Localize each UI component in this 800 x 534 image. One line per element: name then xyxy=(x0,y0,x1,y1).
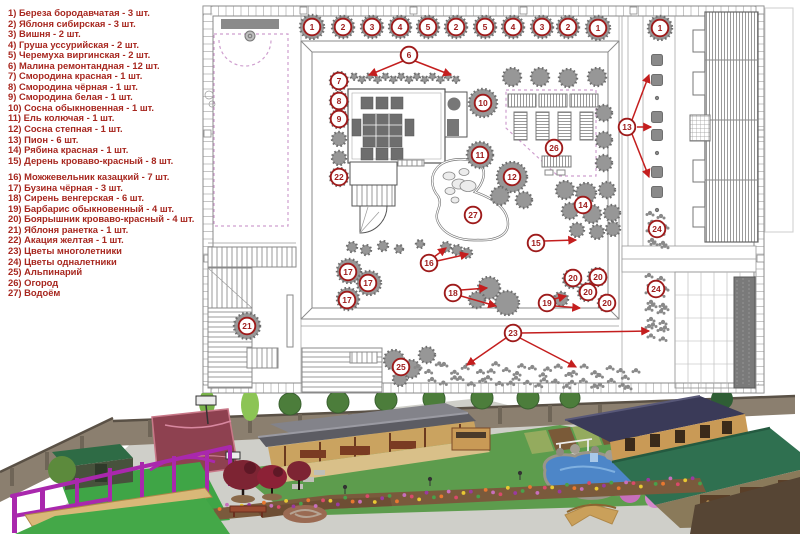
svg-text:24: 24 xyxy=(651,284,661,294)
svg-text:4: 4 xyxy=(398,22,403,32)
plan-marker-2: 2 xyxy=(448,19,465,36)
playground-tree xyxy=(48,456,76,484)
svg-text:23: 23 xyxy=(508,328,518,338)
svg-text:11: 11 xyxy=(476,150,485,160)
plan-marker-12: 12 xyxy=(504,169,521,186)
svg-text:6: 6 xyxy=(407,50,412,60)
svg-text:20: 20 xyxy=(602,298,612,308)
plan-marker-10: 10 xyxy=(475,95,492,112)
plan-marker-23: 23 xyxy=(505,325,522,342)
svg-text:14: 14 xyxy=(578,200,588,210)
house-porch xyxy=(690,115,710,141)
svg-text:17: 17 xyxy=(343,267,353,277)
plan-house xyxy=(690,12,758,242)
plan-marker-20: 20 xyxy=(580,284,597,301)
plan-marker-20: 20 xyxy=(599,295,616,312)
plan-marker-4: 4 xyxy=(392,19,409,36)
svg-text:17: 17 xyxy=(342,295,352,305)
svg-text:18: 18 xyxy=(448,288,458,298)
svg-text:3: 3 xyxy=(370,22,375,32)
svg-text:20: 20 xyxy=(593,272,603,282)
plan-marker-14: 14 xyxy=(575,197,592,214)
svg-text:25: 25 xyxy=(396,362,406,372)
svg-text:22: 22 xyxy=(334,172,344,182)
svg-text:9: 9 xyxy=(337,114,342,124)
svg-text:5: 5 xyxy=(483,22,488,32)
plan-marker-17: 17 xyxy=(339,292,356,309)
garden-3d-render xyxy=(0,393,800,534)
house-window xyxy=(693,30,705,52)
plan-marker-8: 8 xyxy=(331,93,348,110)
svg-text:1: 1 xyxy=(658,23,663,33)
svg-text:2: 2 xyxy=(566,22,571,32)
svg-text:16: 16 xyxy=(424,258,434,268)
plan-marker-9: 9 xyxy=(331,111,348,128)
plan-sport-court xyxy=(205,19,288,226)
plan-marker-18: 18 xyxy=(445,285,462,302)
plan-marker-1: 1 xyxy=(652,20,669,37)
plan-marker-13: 13 xyxy=(619,119,636,136)
plan-marker-20: 20 xyxy=(565,270,582,287)
plan-marker-24: 24 xyxy=(648,281,665,298)
house-window xyxy=(693,207,705,227)
svg-text:27: 27 xyxy=(468,210,478,220)
screenshot-root: { "legend": { "title": "plant-legend", "… xyxy=(0,0,800,534)
plan-marker-17: 17 xyxy=(340,264,357,281)
plan-marker-16: 16 xyxy=(421,255,438,272)
plan-marker-20: 20 xyxy=(590,269,607,286)
outdoor-kitchen xyxy=(452,428,490,450)
svg-text:12: 12 xyxy=(507,172,517,182)
svg-text:3: 3 xyxy=(540,22,545,32)
svg-text:2: 2 xyxy=(454,22,459,32)
svg-text:2: 2 xyxy=(341,22,346,32)
plan-marker-7: 7 xyxy=(331,73,348,90)
svg-text:1: 1 xyxy=(310,22,315,32)
svg-text:7: 7 xyxy=(337,76,342,86)
svg-text:15: 15 xyxy=(531,238,541,248)
plan-marker-5: 5 xyxy=(477,19,494,36)
neighbor-annex-outline xyxy=(765,8,793,232)
plan-marker-19: 19 xyxy=(539,295,556,312)
plan-marker-1: 1 xyxy=(590,20,607,37)
waterfall xyxy=(590,453,598,462)
plan-marker-5: 5 xyxy=(420,19,437,36)
plan-marker-3: 3 xyxy=(364,19,381,36)
svg-text:8: 8 xyxy=(337,96,342,106)
plan-marker-6: 6 xyxy=(401,47,418,64)
svg-text:26: 26 xyxy=(549,143,559,153)
house-window xyxy=(693,72,705,95)
house-window xyxy=(693,160,705,182)
site-plan-drawing: 1234525432116789101112131415161717171819… xyxy=(0,0,800,400)
svg-text:24: 24 xyxy=(652,224,662,234)
plan-marker-26: 26 xyxy=(546,140,563,157)
plan-marker-25: 25 xyxy=(393,359,410,376)
plan-marker-4: 4 xyxy=(505,19,522,36)
svg-text:19: 19 xyxy=(542,298,552,308)
plan-marker-2: 2 xyxy=(335,19,352,36)
plan-marker-1: 1 xyxy=(304,19,321,36)
svg-text:21: 21 xyxy=(242,321,252,331)
plan-marker-2: 2 xyxy=(560,19,577,36)
plan-marker-15: 15 xyxy=(528,235,545,252)
svg-text:5: 5 xyxy=(426,22,431,32)
svg-text:17: 17 xyxy=(363,278,373,288)
plan-marker-27: 27 xyxy=(465,207,482,224)
plan-marker-17: 17 xyxy=(360,275,377,292)
svg-text:10: 10 xyxy=(478,98,488,108)
plan-marker-3: 3 xyxy=(534,19,551,36)
plan-marker-22: 22 xyxy=(331,169,348,186)
plan-marker-24: 24 xyxy=(649,221,666,238)
svg-text:20: 20 xyxy=(583,287,593,297)
svg-text:1: 1 xyxy=(596,23,601,33)
svg-text:20: 20 xyxy=(568,273,578,283)
plan-marker-11: 11 xyxy=(472,147,489,164)
svg-text:4: 4 xyxy=(511,22,516,32)
plan-marker-21: 21 xyxy=(239,318,256,335)
svg-text:13: 13 xyxy=(622,122,632,132)
